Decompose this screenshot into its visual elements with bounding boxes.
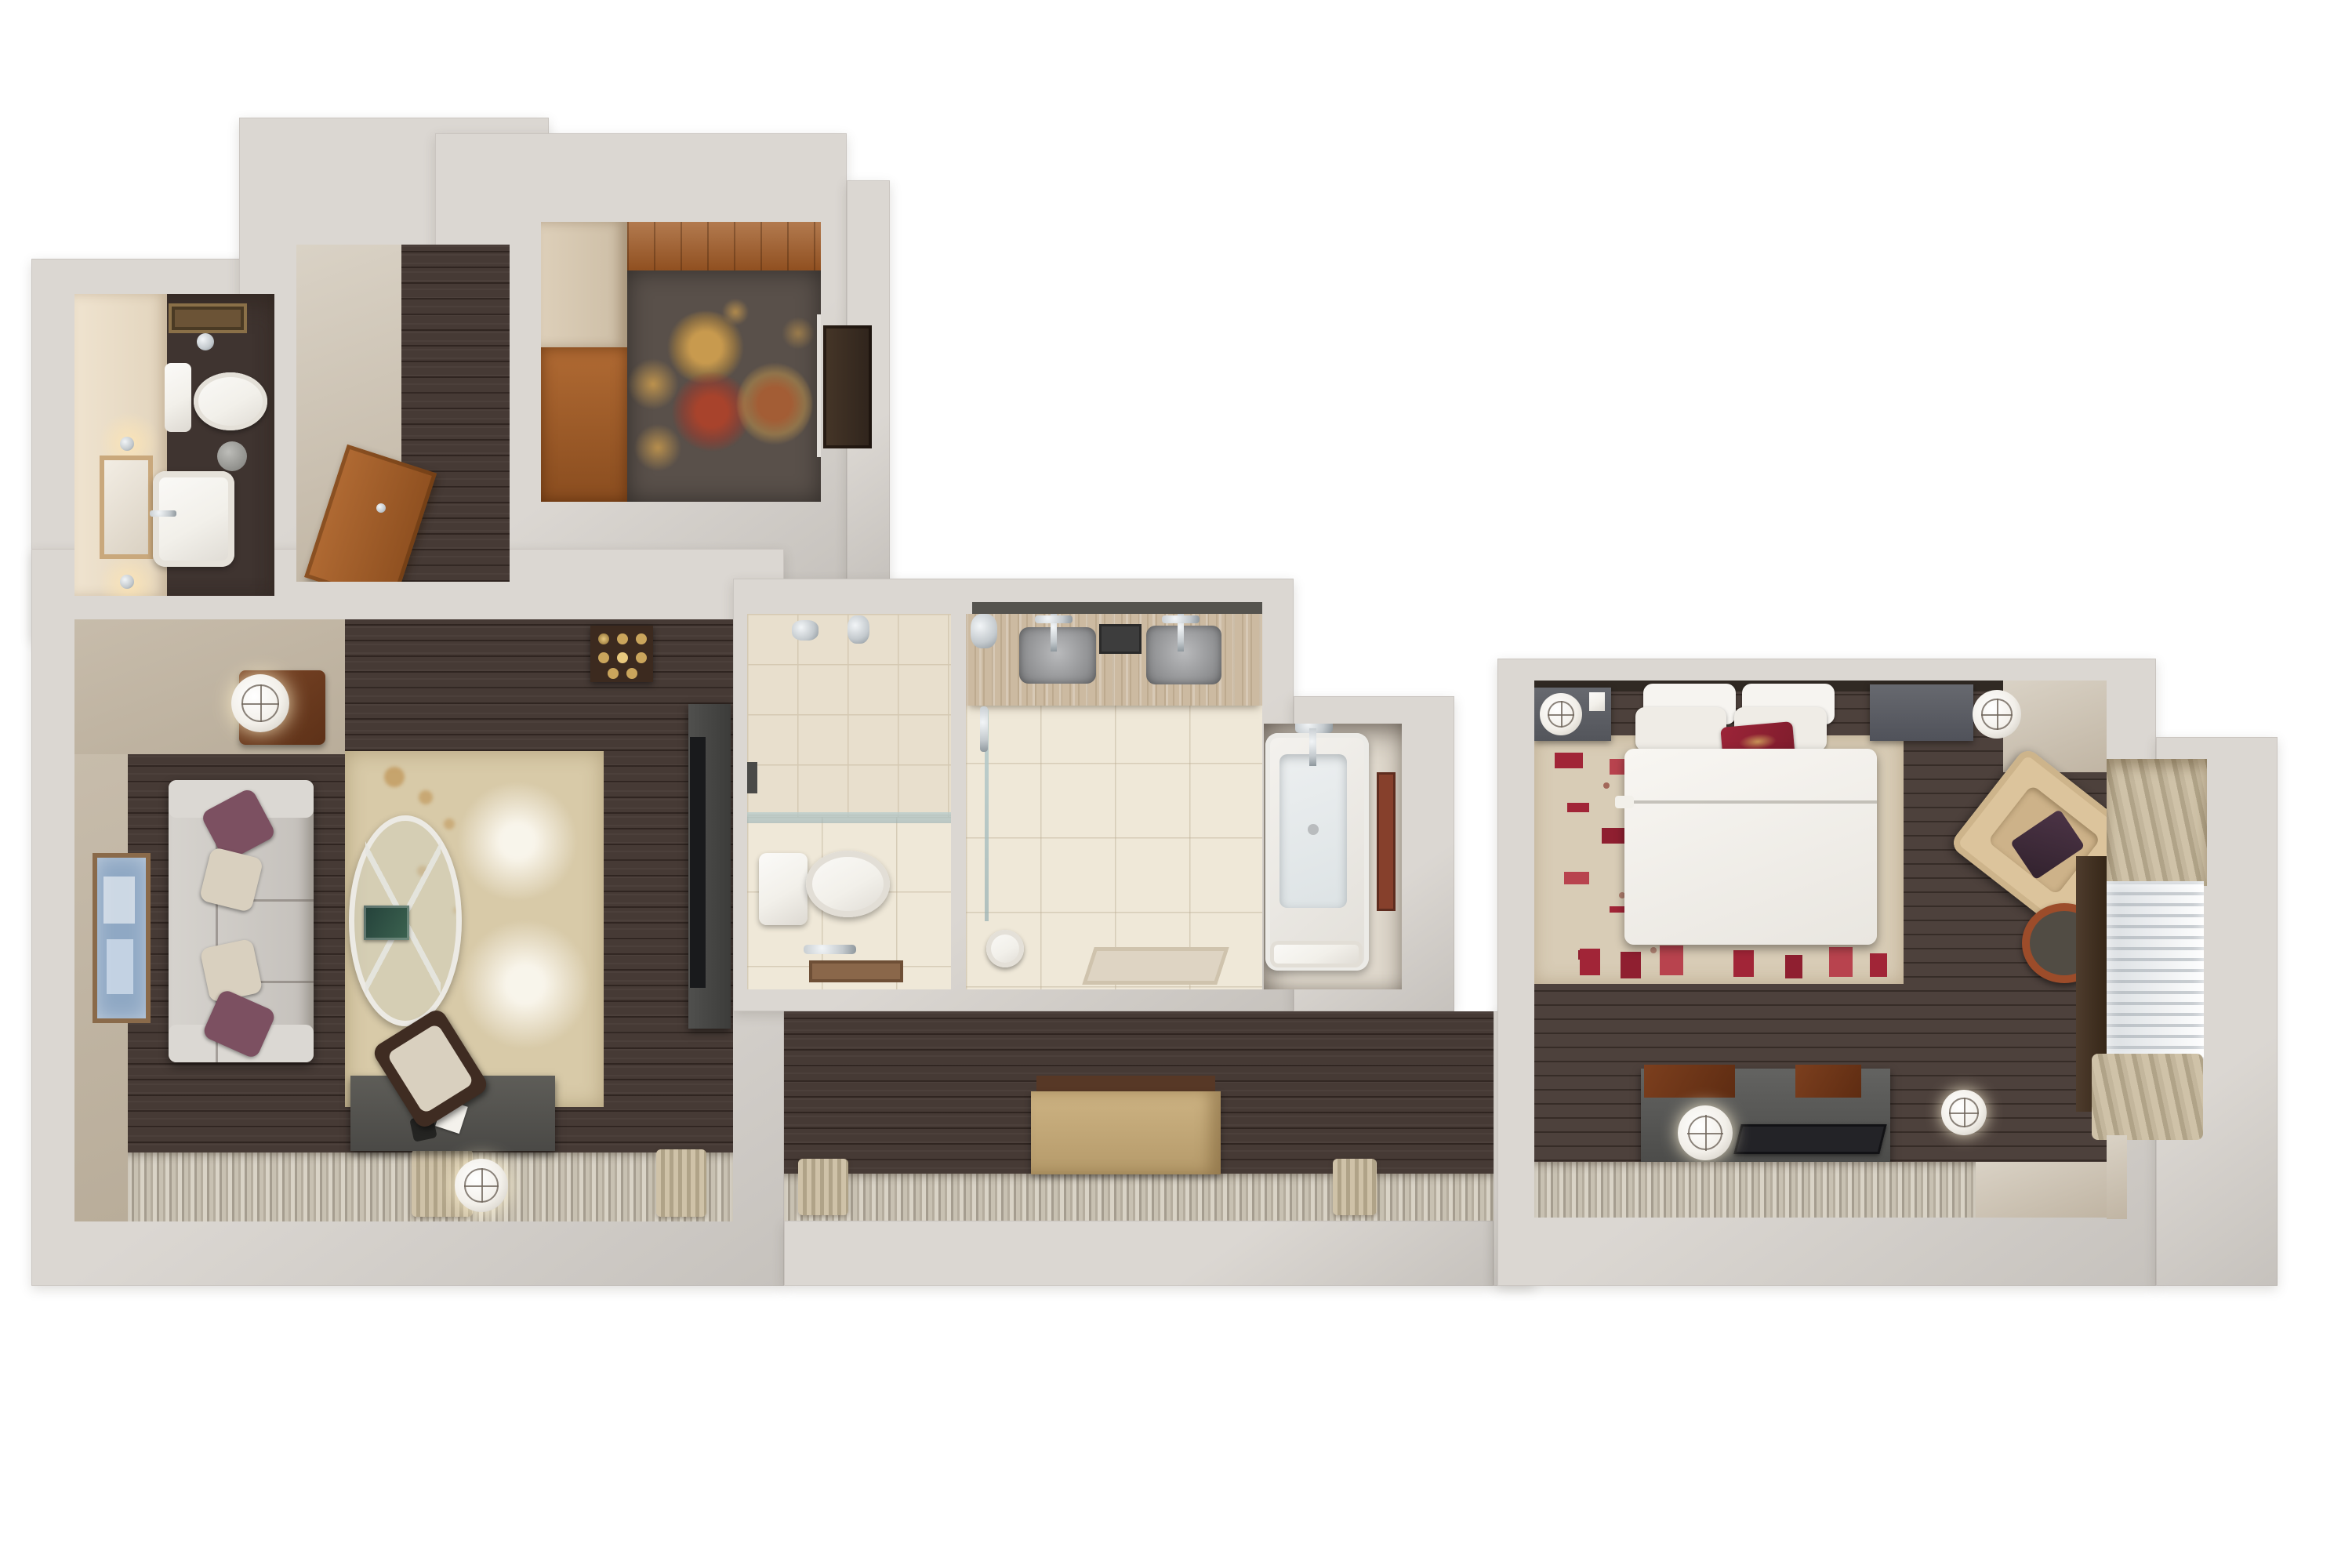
corridor — [784, 1011, 1494, 1221]
rug-border-motifs — [1580, 949, 1600, 975]
corridor-window-sheers — [784, 1174, 1494, 1221]
orb-detail — [1688, 1116, 1723, 1151]
faucet-handles-icon — [1162, 615, 1200, 623]
orb-detail — [1981, 699, 2013, 730]
shower-head-icon — [971, 614, 997, 648]
bay-corner-floor — [2107, 1135, 2127, 1219]
luggage-tray — [1644, 1065, 1735, 1098]
water-closet — [747, 614, 951, 989]
doorway-jamb — [817, 314, 821, 457]
curtain-gather — [798, 1159, 848, 1215]
flat-tv — [1733, 1124, 1886, 1154]
vessel-sink — [1146, 626, 1221, 684]
sink-faucet-icon — [150, 510, 176, 517]
rug-medallion — [737, 363, 812, 445]
closet-millwork — [541, 347, 627, 502]
rug-medallion — [781, 318, 815, 349]
floor-orb-lamp — [1941, 1090, 1987, 1135]
toilet-bowl — [806, 851, 890, 917]
lamp-shade-detail — [464, 1168, 499, 1203]
living-room — [74, 619, 733, 1221]
curtain-gather — [656, 1149, 706, 1217]
powder-room — [74, 294, 274, 596]
rug-bloom — [459, 920, 592, 1049]
king-bed-duvet — [1624, 749, 1877, 945]
art-detail — [107, 939, 133, 994]
waste-bin — [217, 441, 247, 471]
rolled-towels — [1270, 941, 1363, 967]
sofa — [169, 780, 314, 1062]
tent-card — [1589, 692, 1605, 711]
pleated-drapes-gathered — [2092, 1054, 2203, 1140]
vessel-sink — [1019, 627, 1096, 684]
faucet-handles-icon — [1035, 615, 1073, 623]
rug-red-motifs — [1555, 753, 1583, 768]
rolled-towel — [986, 930, 1024, 967]
wall-sconce-icon — [120, 575, 134, 589]
coffee-table-oval — [349, 815, 462, 1026]
upholstered-bench — [1031, 1091, 1221, 1174]
rug-medallion — [633, 424, 682, 471]
toilet-bowl — [194, 372, 267, 430]
rug-medallion — [721, 299, 750, 325]
vanity-mirror-strip — [972, 602, 1262, 614]
pleated-drapes — [2107, 759, 2207, 886]
screenshot-root: { "scene": { "kind": "3d-cutaway-floor-p… — [0, 0, 2352, 1568]
duvet-fold-line — [1615, 796, 1634, 808]
tv-screen — [690, 737, 706, 988]
floor-plan-canvas — [0, 0, 2352, 1568]
bath-mat — [1082, 947, 1229, 985]
orb-detail — [1548, 701, 1575, 728]
nightstand-right — [1870, 684, 1973, 741]
foyer-wood-floor — [627, 222, 821, 270]
rug-speckles — [1603, 782, 1610, 789]
main-bathroom — [966, 614, 1262, 989]
orb-lamp — [1973, 690, 2021, 739]
hand-shower-icon — [980, 706, 988, 752]
wall-corridor-south — [784, 1221, 1494, 1286]
living-art-frame — [93, 853, 151, 1023]
alcove-art-frame — [1377, 772, 1396, 911]
sconce-glow — [98, 553, 161, 596]
glass-shelf — [747, 812, 951, 823]
throw-pillow-cream — [199, 847, 264, 913]
wall-sconce-icon — [120, 437, 134, 451]
rug-bloom — [455, 782, 580, 900]
sheer-window-light — [2107, 881, 2204, 1058]
tub-spout-icon — [1309, 728, 1316, 766]
book — [364, 906, 409, 940]
art-detail — [103, 877, 135, 924]
bed-pillow — [1635, 707, 1726, 751]
amenity-tray — [1099, 624, 1142, 654]
vanity-mirror — [100, 456, 153, 559]
door-handle-icon — [376, 503, 386, 513]
pedestal-sink — [153, 471, 234, 567]
light-switch — [747, 762, 757, 793]
curtain-gather — [1333, 1159, 1377, 1215]
rug-petal-trail — [384, 767, 405, 787]
desk-lamp — [455, 1159, 508, 1212]
luggage-tray — [1795, 1065, 1861, 1098]
bedroom — [1534, 681, 2107, 1218]
table-lamp — [231, 674, 289, 732]
towel-bar-icon — [804, 945, 856, 954]
lamp-shade-detail — [241, 684, 278, 721]
minibar-glasses — [598, 633, 609, 644]
drain-icon — [1308, 824, 1319, 835]
orb-detail — [1949, 1098, 1978, 1127]
entry-hall — [296, 245, 510, 582]
powder-art-frame — [169, 303, 247, 333]
wall-sconce-icon — [792, 620, 818, 641]
orb-clock — [1540, 693, 1582, 735]
toilet-tank — [165, 363, 191, 432]
tub-alcove — [1264, 724, 1402, 989]
rug-medallion — [627, 358, 679, 410]
foyer-interior-door — [823, 325, 872, 448]
wc-tiled-wall — [747, 614, 951, 817]
foyer — [541, 222, 821, 502]
closet-shelf — [541, 222, 627, 347]
bath-mat — [809, 960, 903, 982]
orb-lamp — [1678, 1105, 1733, 1160]
window-side-floor — [1976, 1162, 2107, 1218]
toilet-tank — [759, 853, 808, 925]
wall-sconce-icon — [848, 615, 869, 644]
duvet-fold-line — [1624, 800, 1877, 804]
towel-ring-icon — [197, 333, 214, 350]
foyer-rug — [627, 270, 821, 502]
bedroom-window-sheers — [1534, 1162, 1976, 1218]
